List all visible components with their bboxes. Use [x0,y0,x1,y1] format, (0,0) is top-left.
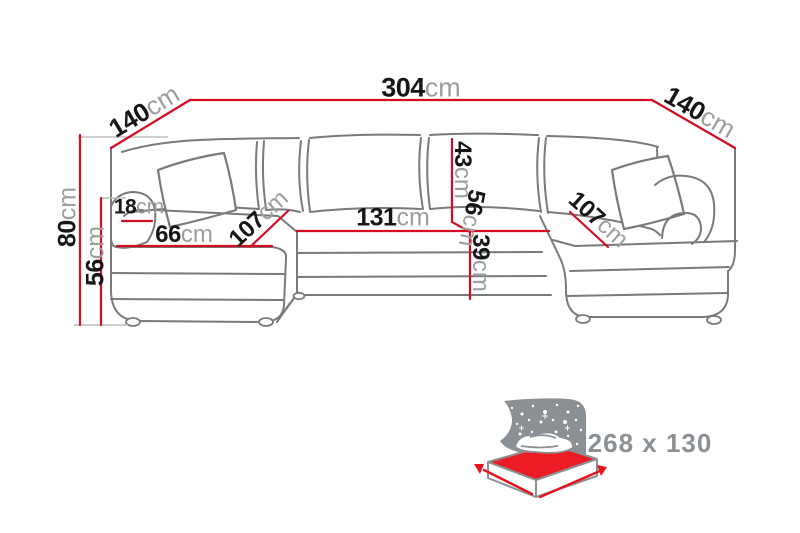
left-chaise-side [138,258,286,322]
back-cushions-top [122,134,658,152]
right-chaise-front-edge [553,240,737,246]
dim-value: 66 [155,221,181,248]
center-front-face [297,231,551,295]
dim-value: 56 [82,259,110,286]
right-pillow [612,156,684,229]
dim-unit: cm [425,73,461,103]
bed-size-label: 268 x 130 [588,430,713,456]
backrest-top-edge [111,100,735,148]
dim-value: 39 [467,234,494,260]
dim-unit: cm [396,204,429,232]
dim-armrest-width-label: 18cm [114,197,164,218]
cushion-gap-4 [537,138,548,213]
dim-value: 43 [449,141,476,167]
right-chaise-seams [567,267,729,296]
dim-value: 80 [54,220,82,247]
left-outer-side [111,148,138,321]
left-chaise-seams [111,273,285,300]
dim-value: 304 [381,73,425,103]
left-pillow [158,153,236,227]
cushion-gap-3 [419,138,430,209]
dim-total-height-label: 80cm [56,187,81,247]
dim-unit: cm [54,187,82,220]
cushion-gap-2 [299,140,310,211]
dim-value: 131 [356,204,396,232]
dim-unit: cm [467,260,494,292]
sofa-dimension-diagram: 304cm 140cm 140cm 80cm 56cm 18cm 66cm 10… [0,0,800,533]
dim-unit: cm [136,196,164,219]
dim-top-width-label: 304cm [381,75,461,102]
dim-seat-front-height-label: 39cm [468,234,492,292]
dim-seat-height-label: 56cm [84,226,109,286]
dim-unit: cm [82,226,110,259]
dim-left-seat-width-label: 66cm [155,223,213,247]
dim-value: 18 [114,196,136,219]
right-outer-side [701,148,735,317]
dim-unit: cm [181,221,213,248]
dim-center-width-label: 131cm [356,206,430,231]
